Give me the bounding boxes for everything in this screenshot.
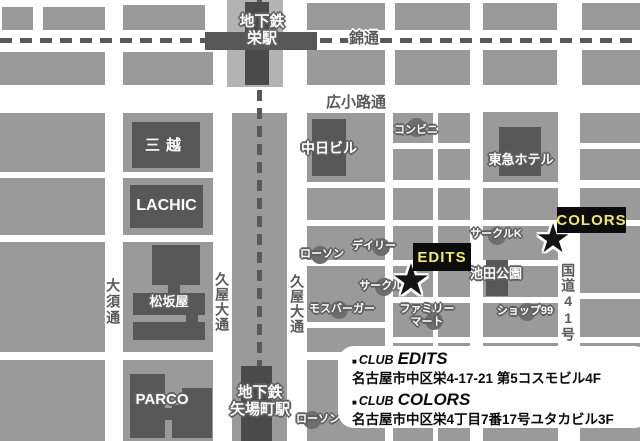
street-label-hisaya-left: 久屋大通 bbox=[214, 272, 230, 332]
city-block bbox=[123, 52, 213, 85]
city-block bbox=[0, 360, 105, 441]
building-label-chunichi: 中日ビル bbox=[294, 140, 364, 156]
city-block bbox=[483, 50, 557, 85]
city-block bbox=[2, 7, 33, 30]
poi-label-mos-burger: モスバーガー bbox=[306, 303, 378, 316]
city-block bbox=[580, 149, 640, 180]
station-label-yabacho-line1: 地下鉄 bbox=[212, 384, 308, 401]
legend-entry-edits-title: ■ CLUB EDITS bbox=[352, 349, 640, 367]
city-block bbox=[307, 3, 385, 30]
street-label-hisaya-right: 久屋大通 bbox=[289, 274, 305, 334]
legend-club-name-edits: EDITS bbox=[398, 349, 448, 369]
city-block bbox=[0, 178, 105, 235]
building-label-tokyu-hotel: 東急ホテル bbox=[485, 153, 557, 168]
legend-entry-colors-title: ■ CLUB COLORS bbox=[352, 390, 640, 408]
legend-club-name-colors: COLORS bbox=[398, 390, 471, 410]
bullet-icon: ■ bbox=[352, 398, 357, 407]
city-block bbox=[307, 50, 385, 85]
building-label-parco: PARCO bbox=[124, 391, 200, 408]
building-shape bbox=[172, 405, 212, 438]
city-block bbox=[395, 3, 470, 30]
city-block bbox=[582, 50, 640, 85]
poi-label-lawson-1: ローソン bbox=[298, 248, 346, 261]
building-shape bbox=[186, 315, 198, 322]
city-block bbox=[0, 242, 105, 352]
city-block bbox=[483, 188, 558, 220]
city-block bbox=[582, 3, 640, 30]
legend-address-edits: 名古屋市中区栄4-17-21 第5コスモビル4F bbox=[352, 367, 640, 385]
street-label-hirokoji: 広小路通 bbox=[316, 94, 396, 111]
poi-label-circlek-1: サークルK bbox=[468, 228, 524, 241]
legend-club-word: CLUB bbox=[359, 394, 394, 408]
poi-label-daily: デイリー bbox=[350, 240, 398, 253]
venue-box-colors: COLORS bbox=[557, 207, 626, 233]
station-label-sakae-line2: 栄駅 bbox=[222, 30, 302, 47]
subway-line-nishiki-dashed-left bbox=[0, 38, 205, 43]
poi-label-shop99: ショップ99 bbox=[496, 305, 554, 318]
city-block bbox=[580, 113, 640, 143]
city-block bbox=[438, 113, 470, 143]
city-block bbox=[43, 7, 105, 30]
street-label-route41: 国道41号 bbox=[560, 263, 576, 342]
city-block bbox=[0, 113, 105, 172]
city-block bbox=[393, 149, 433, 180]
legend-address-colors: 名古屋市中区栄4丁目7番17号ユタカビル3F bbox=[352, 408, 640, 426]
street-label-osu: 大須通 bbox=[105, 278, 121, 326]
building-label-mitsukoshi: 三越 bbox=[132, 137, 200, 154]
city-block bbox=[0, 52, 105, 85]
city-block bbox=[580, 226, 640, 293]
station-label-sakae-line1: 地下鉄 bbox=[222, 13, 302, 30]
station-label-yabacho-line2: 矢場町駅 bbox=[212, 401, 308, 418]
city-block bbox=[395, 50, 470, 85]
city-block bbox=[438, 149, 470, 180]
station-label-yabacho: 地下鉄 矢場町駅 bbox=[212, 384, 308, 419]
access-map: 錦通 広小路通 大須通 久屋大通 久屋大通 国道41号 地下鉄 栄駅 地下鉄 矢… bbox=[0, 0, 640, 441]
building-shape bbox=[168, 285, 180, 293]
building-shape bbox=[133, 322, 205, 340]
legend-club-word: CLUB bbox=[359, 353, 394, 367]
building-shape bbox=[152, 245, 200, 285]
poi-label-familymart-line2: マート bbox=[398, 316, 456, 329]
building-label-lachic: LACHIC bbox=[130, 197, 203, 215]
city-block bbox=[123, 5, 205, 30]
city-block bbox=[307, 188, 385, 220]
building-label-matsuzakaya: 松坂屋 bbox=[146, 295, 192, 310]
poi-label-familymart: ファミリー マート bbox=[398, 303, 456, 328]
city-block bbox=[580, 299, 640, 337]
legend: ■ CLUB EDITS 名古屋市中区栄4-17-21 第5コスモビル4F ■ … bbox=[352, 349, 640, 426]
city-block bbox=[393, 188, 433, 220]
city-block bbox=[483, 3, 557, 30]
bullet-icon: ■ bbox=[352, 357, 357, 366]
poi-label-conbini: コンビニ bbox=[394, 124, 438, 137]
venue-box-edits: EDITS bbox=[413, 243, 471, 271]
city-block bbox=[438, 188, 470, 220]
poi-label-lawson-2: ローソン bbox=[296, 413, 340, 426]
station-label-sakae: 地下鉄 栄駅 bbox=[222, 13, 302, 48]
street-label-nishiki: 錦通 bbox=[338, 30, 390, 47]
